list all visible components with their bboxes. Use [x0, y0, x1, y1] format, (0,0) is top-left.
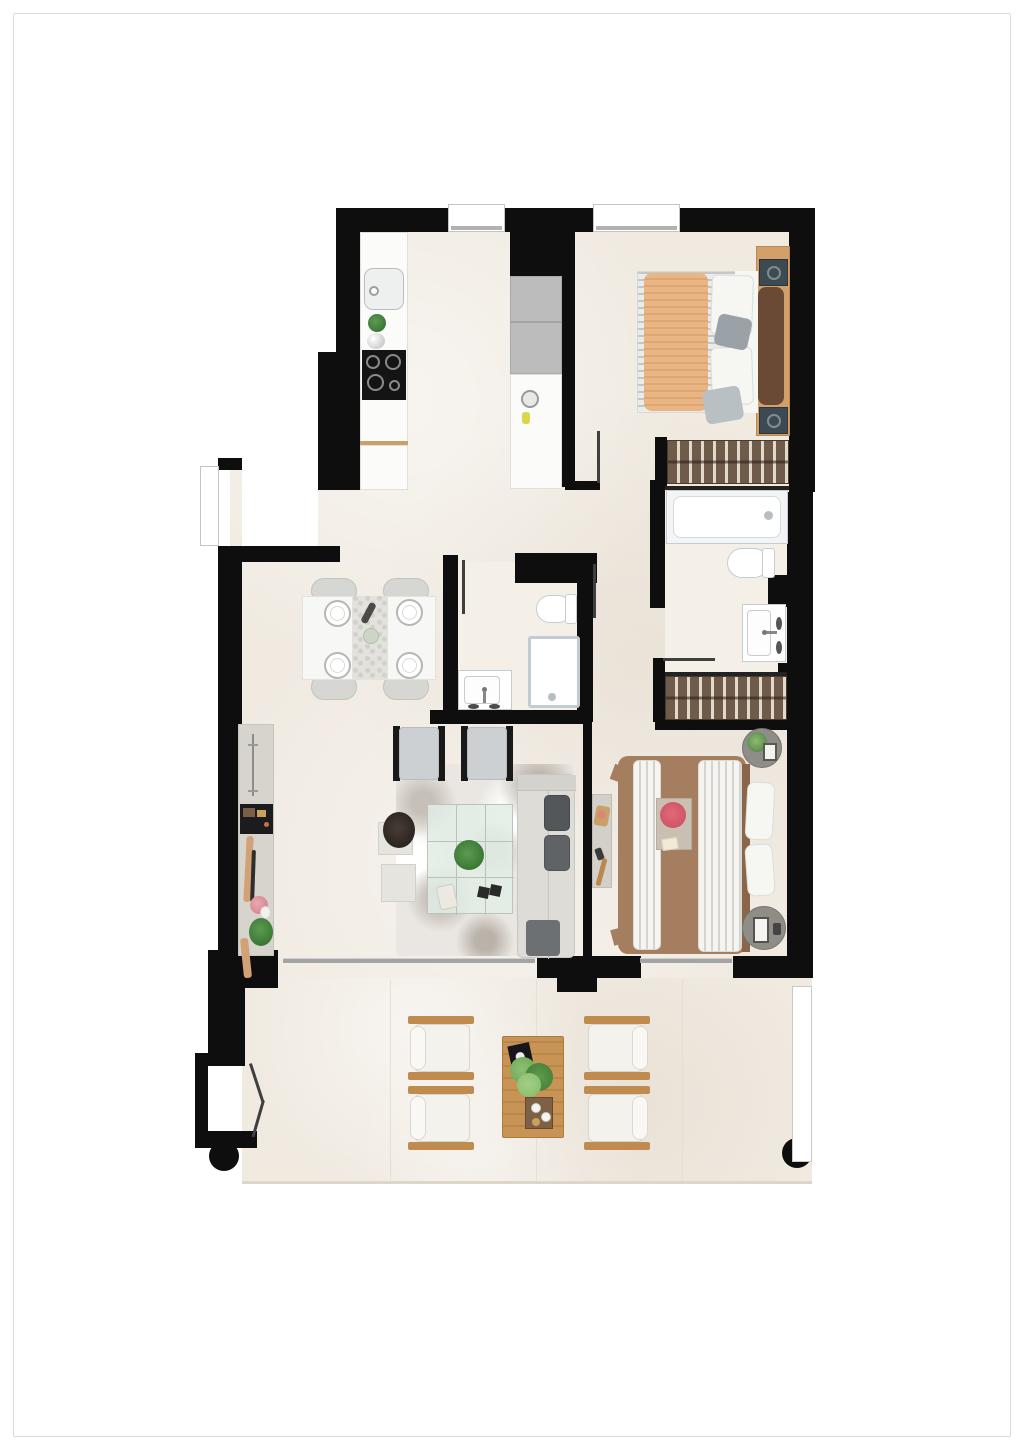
- place-setting-plate: [396, 599, 423, 626]
- place-setting-plate: [324, 600, 351, 627]
- tv-decor: [264, 822, 269, 827]
- chair-wood-bar: [408, 1016, 474, 1024]
- armchair-seat: [467, 727, 507, 780]
- cup-icon: [531, 1103, 541, 1113]
- chair-back-roll: [410, 1096, 426, 1140]
- wall-kitchen-left: [336, 232, 360, 490]
- place-setting-plate: [396, 652, 423, 679]
- chair-wood-bar: [408, 1086, 474, 1094]
- bathtub-drain: [764, 511, 773, 520]
- master-bed-orange-throw: [644, 273, 708, 411]
- nightstand-decor: [767, 266, 781, 280]
- terrace-sliding-door-left: [283, 958, 535, 963]
- lounge-chair: [584, 1016, 650, 1080]
- faucet-dot: [762, 630, 767, 635]
- kitchen-island-counter: [510, 374, 562, 489]
- toilet-tank-bath2: [565, 594, 577, 624]
- washbasin-vanity-bath1: [742, 604, 786, 662]
- desk-flower-icon: [597, 810, 606, 819]
- decor-icon: [773, 923, 781, 935]
- card-decor-icon: [661, 837, 679, 851]
- fridge-cabinet: [510, 276, 562, 374]
- window-master-sill: [596, 226, 677, 230]
- burner-icon: [367, 374, 384, 391]
- tap-handle: [776, 641, 782, 654]
- kitchen-faucet-icon: [369, 286, 379, 296]
- burner-icon: [385, 354, 401, 370]
- plant-icon: [454, 840, 484, 870]
- exterior-notch-left-2: [242, 462, 318, 546]
- ottoman: [526, 920, 560, 956]
- wall-bath1-left-lower: [653, 658, 665, 722]
- kitchen-lower-unit: [360, 445, 408, 490]
- bedside-table-round: [742, 906, 786, 950]
- cooktop-icon: [362, 350, 406, 400]
- floor-plan-page: [0, 0, 1024, 1450]
- terrace-tile-seam: [682, 980, 683, 1181]
- armchair-rail: [438, 726, 445, 781]
- master-headboard-cushion: [758, 287, 784, 405]
- lamp-icon: [753, 917, 769, 943]
- terrace-railing: [792, 986, 812, 1162]
- wall-right-upper: [789, 232, 815, 492]
- chair-wood-bar: [584, 1016, 650, 1024]
- sideboard-hook: [248, 790, 258, 792]
- wall-bottom-living-step: [557, 978, 597, 992]
- column-left: [209, 1141, 239, 1171]
- sofa-cushion: [544, 835, 570, 871]
- glass-grid-line: [428, 877, 514, 878]
- burner-icon: [366, 355, 380, 369]
- chair-back-roll: [632, 1026, 648, 1070]
- exterior-notch-top-left: [230, 208, 338, 354]
- striped-duvet: [698, 760, 742, 952]
- cup-icon: [541, 1112, 551, 1122]
- fridge-divider-line: [510, 321, 562, 323]
- wall-left-cap: [218, 458, 242, 470]
- master-nightstand-icon: [759, 259, 788, 286]
- glass-coffee-table: [427, 804, 513, 914]
- door-leaf-master-bedroom: [597, 431, 600, 483]
- wall-right-middle: [787, 492, 813, 722]
- door-leaf-bathroom2: [462, 560, 465, 614]
- terrace-sliding-door-right: [640, 958, 732, 963]
- bedroom2-pillow: [745, 781, 776, 840]
- shower-drain: [548, 693, 556, 701]
- tap-handle: [468, 704, 479, 709]
- wall-bottom-living: [537, 956, 641, 978]
- bedside-table-round: [742, 728, 782, 768]
- basket-plant-icon: [383, 812, 415, 848]
- exterior-notch-left: [230, 354, 318, 462]
- master-wardrobe-rail: [667, 440, 789, 484]
- window-kitchen-sill: [451, 226, 502, 230]
- chair-wood-bar: [408, 1142, 474, 1150]
- wall-corridor-bedroom: [562, 232, 575, 487]
- cup-icon: [532, 1118, 540, 1126]
- tv-decor: [243, 808, 255, 817]
- sofa-armrest: [518, 775, 576, 791]
- wall-bath2-left: [443, 555, 458, 722]
- wall-bath2-top-chunk: [515, 553, 597, 583]
- table-centerpiece-icon: [363, 628, 379, 644]
- washbasin-vanity-bath2: [458, 670, 512, 710]
- kitchen-pot-icon: [367, 333, 385, 349]
- serving-tray-icon: [525, 1097, 553, 1129]
- wall-bottom-right: [733, 956, 813, 978]
- wall-right-lower: [787, 722, 813, 978]
- wall-top-middle: [503, 208, 593, 232]
- sideboard-hook: [248, 744, 258, 746]
- place-setting-plate: [324, 652, 351, 679]
- faucet-icon: [483, 691, 486, 703]
- terrace-tile-seam: [390, 980, 391, 1181]
- tap-handle: [776, 617, 782, 630]
- burner-icon: [389, 380, 400, 391]
- glasses-icon: [477, 886, 490, 899]
- door-leaf-hallway: [593, 564, 596, 618]
- island-decor-icon: [522, 412, 530, 424]
- side-table: [381, 864, 416, 902]
- chair-wood-bar: [584, 1086, 650, 1094]
- armchair: [393, 726, 445, 781]
- master-gray-cushion: [701, 385, 744, 425]
- wall-top-kitchen: [336, 208, 448, 232]
- wall-top-right: [680, 208, 815, 232]
- toilet-tank-bath1: [762, 548, 775, 578]
- wall-bath1-step: [768, 575, 789, 607]
- plant-icon: [517, 1073, 541, 1097]
- island-bowl-icon: [521, 390, 539, 408]
- kitchen-plant-icon: [368, 314, 386, 332]
- plant-icon: [249, 918, 273, 946]
- wall-bottom-left-vertical: [208, 988, 245, 1055]
- bedroom2-pillow: [744, 843, 776, 897]
- shower-tray-icon: [528, 636, 580, 708]
- armchair-seat: [399, 727, 439, 780]
- sofa-cushion: [544, 795, 570, 831]
- terrace-table: [502, 1036, 564, 1138]
- chair-wood-bar: [584, 1142, 650, 1150]
- wall-bath1-left-upper: [650, 480, 665, 608]
- lounge-chair: [408, 1016, 474, 1080]
- wall-master-door-stub: [565, 481, 600, 490]
- armchair: [461, 726, 513, 781]
- chair-back-roll: [410, 1026, 426, 1070]
- tv-icon: [240, 804, 273, 834]
- master-gray-cushion: [713, 313, 753, 351]
- terrace-edge-shadow: [242, 1181, 812, 1184]
- window-left-wall: [200, 466, 219, 546]
- nightstand-decor: [767, 414, 781, 428]
- wall-top-middle-pier: [510, 232, 567, 276]
- tv-decor: [257, 810, 266, 817]
- flowers-icon: [660, 802, 686, 828]
- wall-living-bedroom2: [583, 695, 592, 958]
- bathtub-icon: [666, 490, 788, 544]
- striped-duvet: [633, 760, 661, 950]
- chair-wood-bar: [408, 1072, 474, 1080]
- candle-decor-icon: [436, 883, 459, 910]
- door-leaf-bathroom1: [663, 658, 715, 661]
- wardrobe-rail-2: [665, 676, 787, 720]
- armchair-rail: [506, 726, 513, 781]
- tap-handle: [489, 704, 500, 709]
- chair-back-roll: [632, 1096, 648, 1140]
- glasses-icon: [489, 884, 502, 897]
- lounge-chair: [408, 1086, 474, 1150]
- chair-wood-bar: [584, 1072, 650, 1080]
- lounge-chair: [584, 1086, 650, 1150]
- wall-bath2-bottom: [430, 710, 583, 724]
- wall-kitchen-left-jut: [318, 352, 336, 490]
- wall-wardrobe1-left: [655, 437, 667, 490]
- picture-frame-icon: [763, 743, 777, 761]
- master-nightstand-icon: [759, 407, 788, 434]
